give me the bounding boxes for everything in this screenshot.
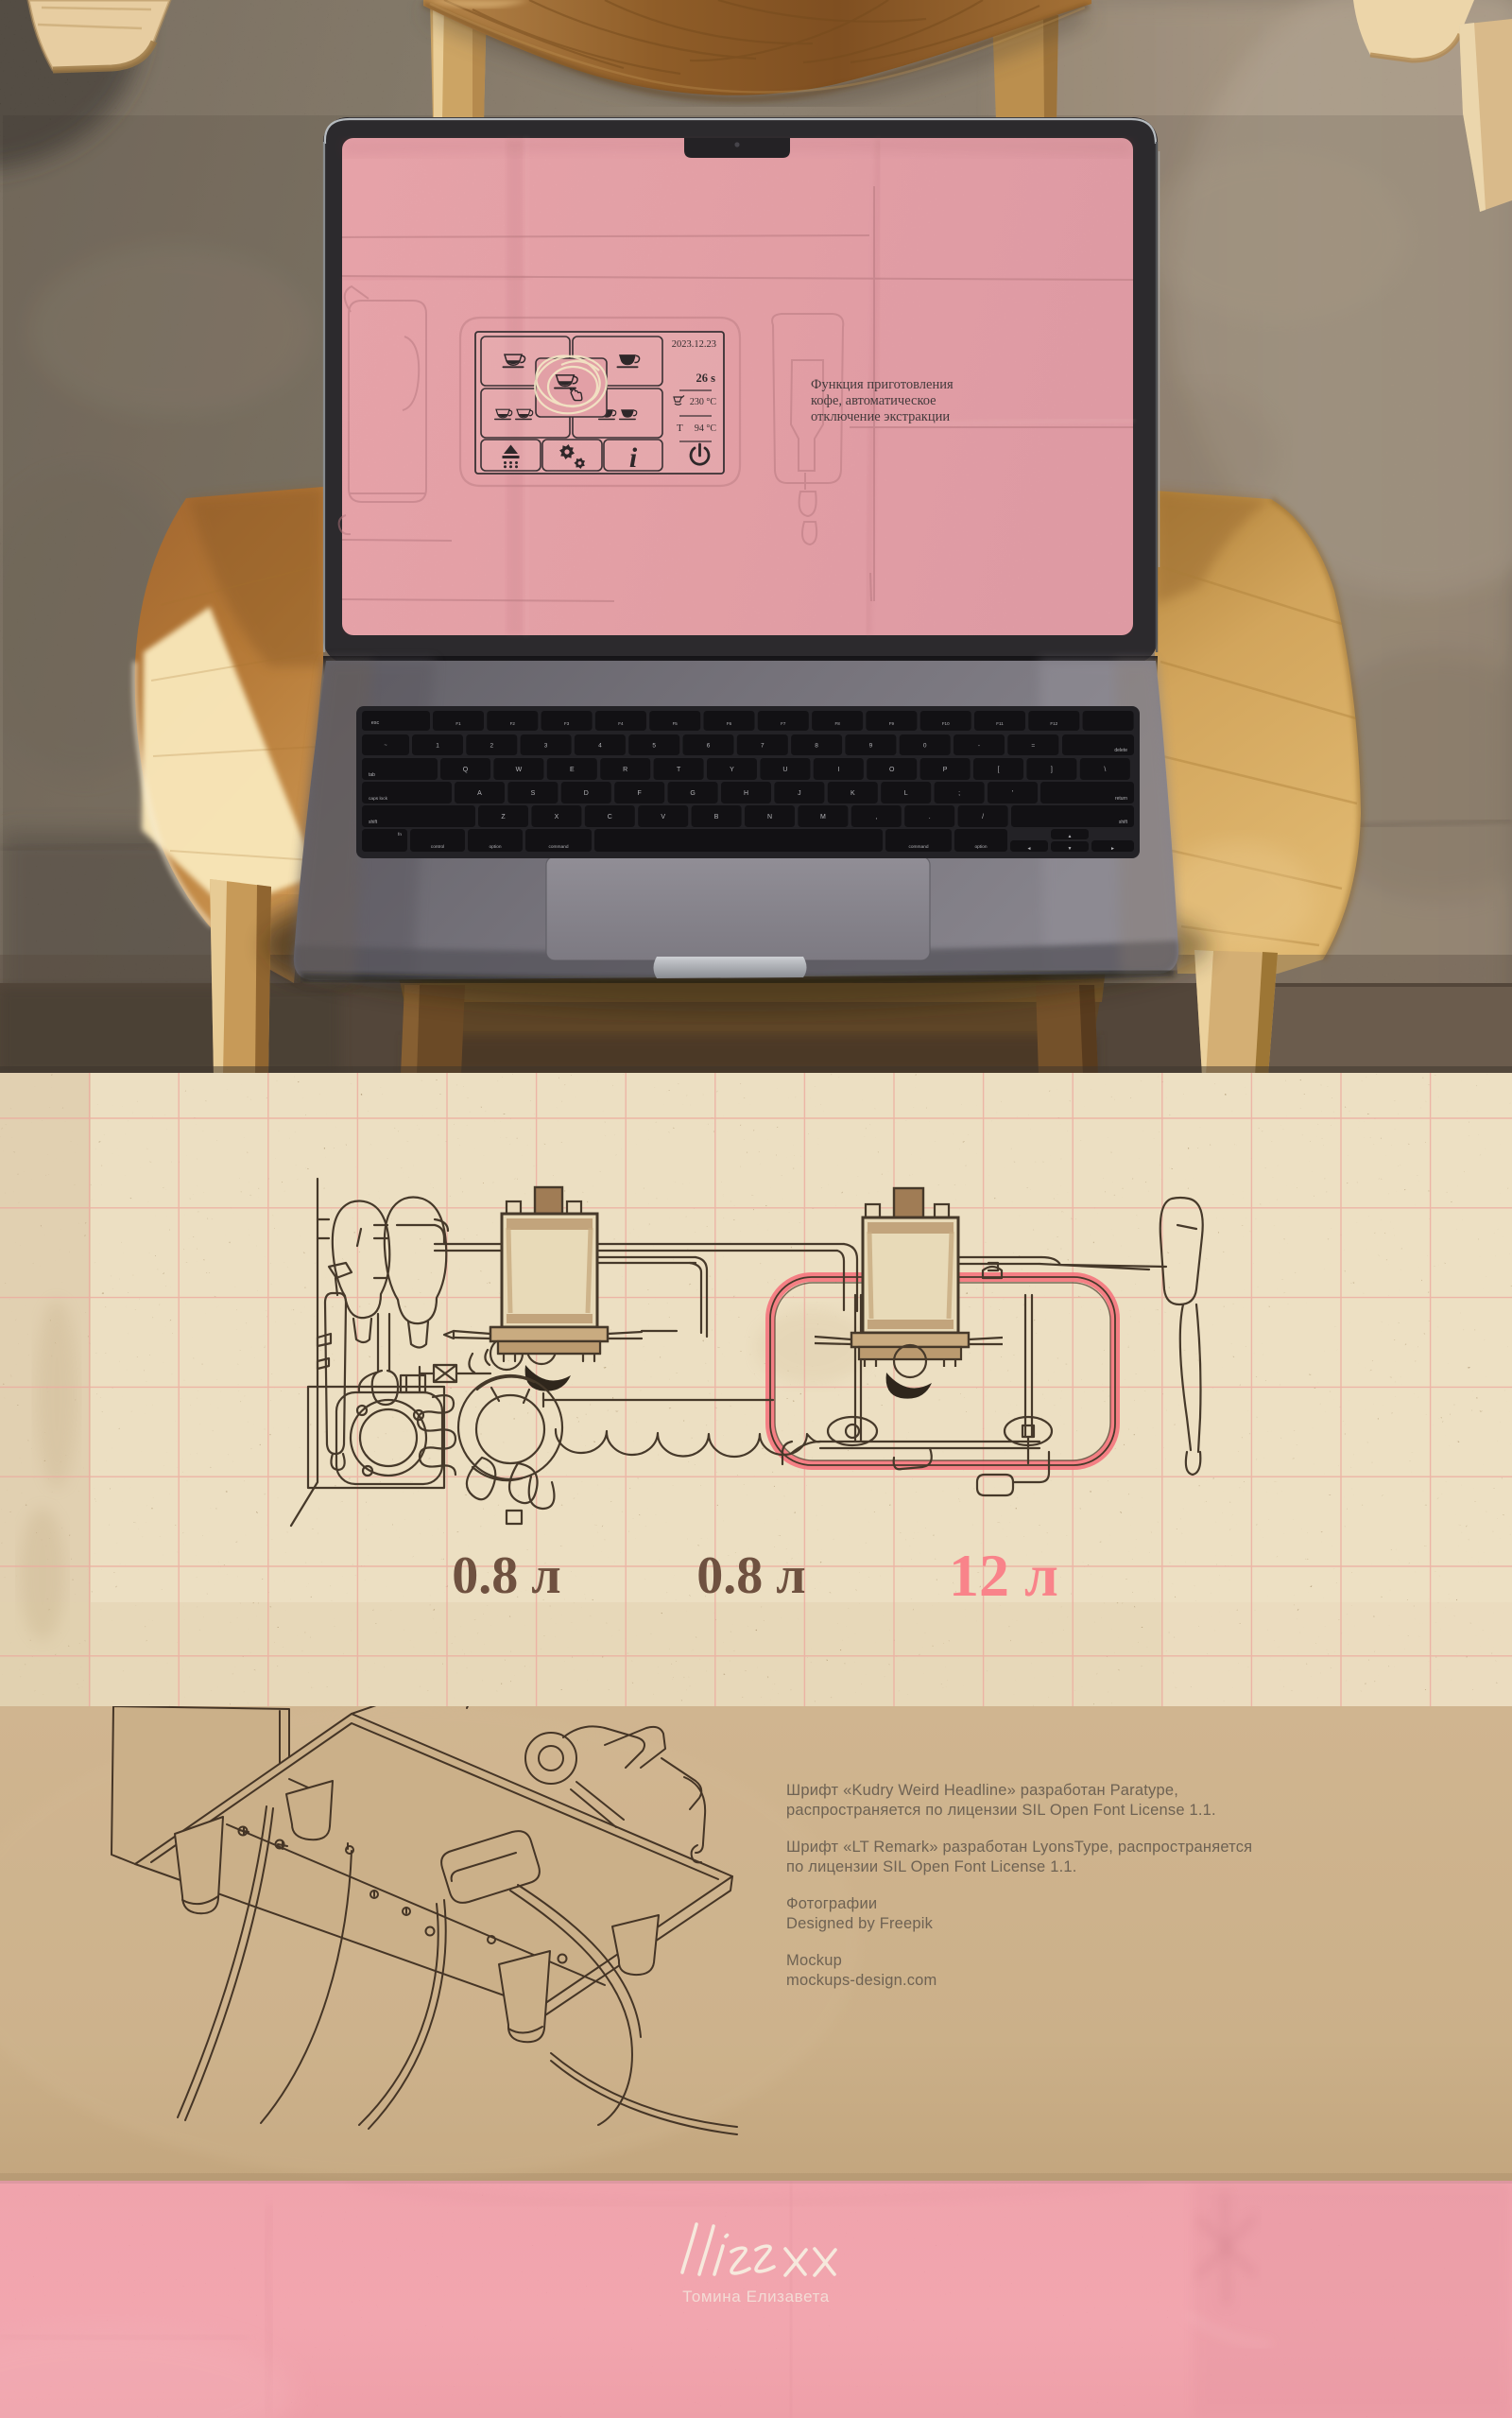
svg-text:return: return (1115, 796, 1127, 802)
svg-text:F: F (638, 790, 642, 797)
svg-text:command: command (908, 844, 928, 850)
svg-text:V: V (661, 814, 665, 820)
svg-text:S: S (531, 790, 536, 797)
svg-text:8: 8 (815, 742, 818, 749)
svg-text:5: 5 (652, 742, 656, 749)
svg-text:F8: F8 (834, 721, 840, 726)
svg-text:]: ] (1051, 767, 1053, 773)
svg-text:': ' (1012, 790, 1013, 797)
svg-text:[: [ (998, 767, 1000, 773)
svg-text:F10: F10 (942, 721, 950, 726)
svg-text:H: H (744, 790, 748, 797)
svg-text:1: 1 (436, 742, 439, 749)
svg-text:i: i (629, 442, 638, 474)
svg-text:F5: F5 (673, 721, 679, 726)
svg-text:W: W (516, 767, 523, 773)
svg-text:K: K (850, 790, 855, 797)
svg-text:▼: ▼ (1068, 846, 1073, 852)
svg-text:Q: Q (463, 767, 469, 773)
svg-text:4: 4 (598, 742, 602, 749)
svg-text:0: 0 (923, 742, 927, 749)
svg-text:F7: F7 (781, 721, 786, 726)
svg-text:-: - (978, 742, 980, 749)
svg-text:caps lock: caps lock (369, 796, 388, 802)
svg-text:F1: F1 (455, 721, 461, 726)
svg-text:F9: F9 (889, 721, 895, 726)
svg-text:fn: fn (398, 832, 402, 838)
svg-text:26 s: 26 s (696, 371, 716, 385)
svg-text:F12: F12 (1050, 721, 1057, 726)
svg-text:\: \ (1104, 767, 1106, 773)
svg-text:2023.12.23: 2023.12.23 (672, 339, 716, 350)
svg-text:option: option (974, 844, 987, 850)
svg-text:R: R (623, 767, 627, 773)
svg-text:O: O (889, 767, 895, 773)
svg-text:J: J (798, 790, 801, 797)
svg-text:M: M (820, 814, 826, 820)
svg-text:Функция приготовления: Функция приготовления (811, 377, 954, 392)
svg-text:I: I (837, 767, 839, 773)
svg-text:tab: tab (369, 772, 375, 778)
svg-text:94 °C: 94 °C (695, 423, 716, 434)
svg-text:▲: ▲ (1068, 834, 1073, 839)
svg-text:L: L (904, 790, 908, 797)
svg-text:P: P (943, 767, 948, 773)
svg-text:6: 6 (707, 742, 711, 749)
svg-text:control: control (431, 844, 444, 850)
svg-text:◄: ◄ (1027, 846, 1032, 852)
svg-text:кофе, автоматическое: кофе, автоматическое (811, 393, 936, 408)
svg-text:U: U (782, 767, 787, 773)
svg-text:3: 3 (544, 742, 548, 749)
svg-text:N: N (767, 814, 772, 820)
svg-text:F6: F6 (727, 721, 732, 726)
svg-text:230 °C: 230 °C (690, 397, 716, 407)
svg-text:command: command (548, 844, 568, 850)
svg-text:G: G (690, 790, 695, 797)
svg-text:A: A (477, 790, 482, 797)
svg-text:/: / (982, 814, 984, 820)
svg-text:;: ; (958, 790, 960, 797)
svg-text:0.8 л: 0.8 л (452, 1546, 560, 1605)
svg-text:Y: Y (730, 767, 734, 773)
svg-text:delete: delete (1114, 748, 1127, 753)
svg-text:shift: shift (1119, 820, 1128, 825)
svg-text:=: = (1031, 742, 1035, 749)
svg-text:отключение экстракции: отключение экстракции (811, 409, 950, 424)
svg-text:F2: F2 (510, 721, 516, 726)
svg-text:option: option (489, 844, 501, 850)
svg-text:9: 9 (869, 742, 873, 749)
svg-text:esc: esc (371, 720, 380, 726)
svg-text:2: 2 (490, 742, 493, 749)
svg-text:Z: Z (501, 814, 506, 820)
svg-text:T: T (677, 767, 681, 773)
svg-text:,: , (875, 814, 877, 820)
svg-text:►: ► (1110, 846, 1115, 852)
svg-text:F3: F3 (564, 721, 570, 726)
svg-text:T: T (677, 423, 683, 434)
svg-text:F11: F11 (996, 721, 1004, 726)
svg-text:7: 7 (761, 742, 765, 749)
svg-text:X: X (555, 814, 559, 820)
svg-text:0.8 л: 0.8 л (696, 1546, 805, 1605)
svg-text:.: . (929, 814, 931, 820)
svg-text:E: E (570, 767, 575, 773)
svg-text:B: B (714, 814, 719, 820)
svg-text:F4: F4 (618, 721, 624, 726)
svg-text:D: D (584, 790, 589, 797)
svg-text:12 л: 12 л (949, 1542, 1058, 1609)
svg-text:~: ~ (384, 743, 387, 749)
svg-text:C: C (608, 814, 612, 820)
svg-text:shift: shift (369, 820, 378, 825)
